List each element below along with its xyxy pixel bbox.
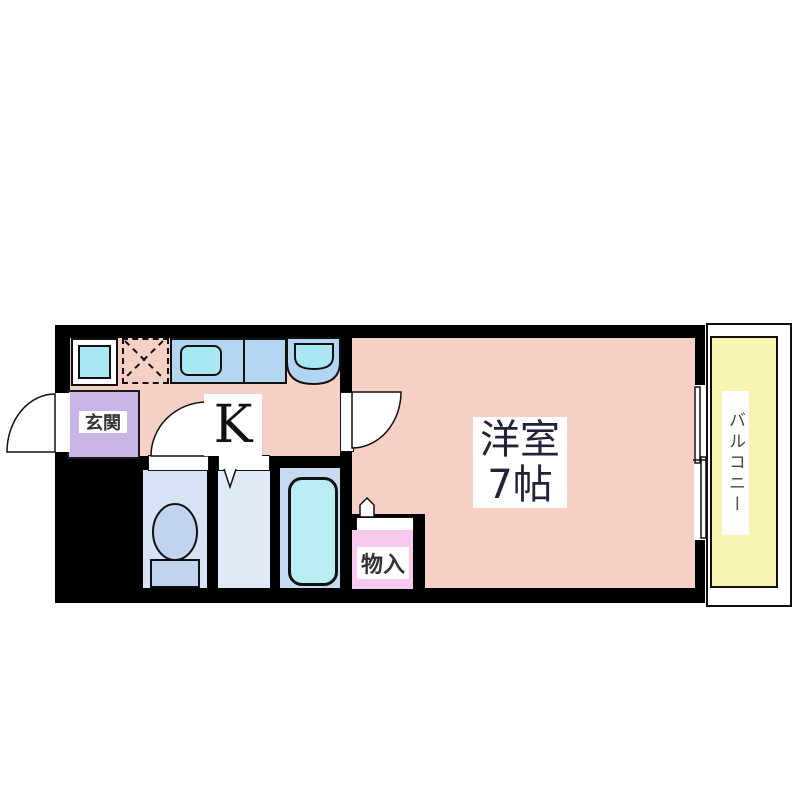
washing-machine-tub-icon: [78, 345, 111, 379]
washroom-floor: [218, 468, 270, 588]
refrigerator-space-icon: [122, 338, 169, 384]
toilet-room-floor: [143, 470, 207, 588]
floorplan-canvas: K 玄関 洋室 7帖 物入 バルコニー: [0, 0, 800, 800]
balcony-label: バルコニー: [722, 391, 749, 535]
storage-label: 物入: [357, 547, 409, 579]
toilet-door-leaf: [148, 455, 209, 471]
counter-divider-line: [243, 338, 245, 384]
kitchen-label: K: [204, 394, 262, 456]
room-door-leaf: [340, 392, 354, 452]
sliding-window-opening: [694, 385, 706, 540]
entrance-door-swing-icon: [7, 394, 55, 452]
bathtub-icon: [288, 477, 338, 586]
western-room-label: 洋室 7帖: [473, 417, 567, 508]
kitchen-sink-icon: [180, 345, 222, 376]
entrance-label: 玄関: [79, 411, 127, 433]
entrance-door-opening: [53, 393, 70, 452]
washroom-door-opening: [218, 455, 270, 471]
western-room-label-line2: 7帖: [487, 463, 552, 508]
western-room-label-line1: 洋室: [480, 418, 560, 463]
